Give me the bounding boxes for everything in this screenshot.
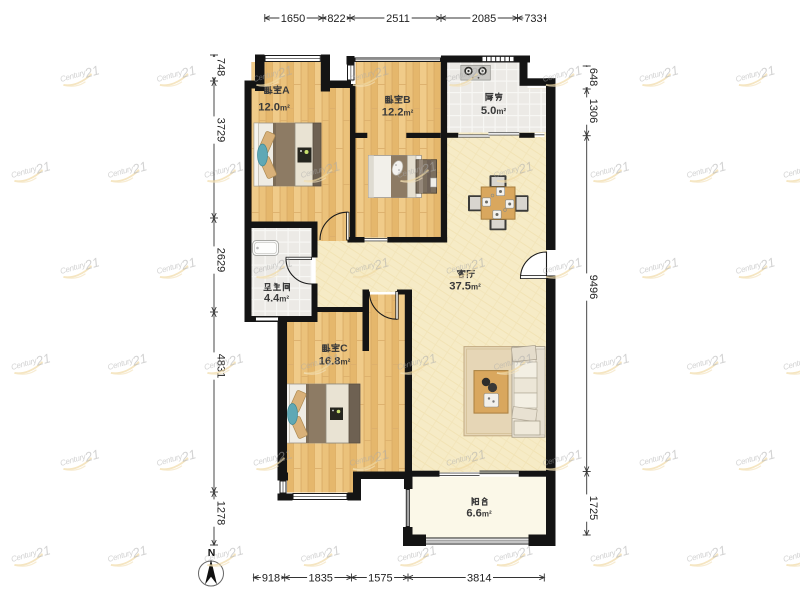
svg-text:12.2m²: 12.2m² xyxy=(382,107,414,119)
svg-text:2085: 2085 xyxy=(472,13,496,25)
svg-text:3814: 3814 xyxy=(467,573,491,585)
svg-text:6.6m²: 6.6m² xyxy=(466,508,492,520)
svg-text:748: 748 xyxy=(215,58,227,76)
svg-text:3729: 3729 xyxy=(215,118,227,142)
svg-text:4.4m²: 4.4m² xyxy=(264,293,289,305)
svg-text:1575: 1575 xyxy=(368,573,392,585)
svg-text:37.5m²: 37.5m² xyxy=(449,281,481,293)
svg-text:B: B xyxy=(403,95,411,106)
svg-text:A: A xyxy=(282,86,290,97)
svg-text:C: C xyxy=(340,344,348,355)
svg-text:2511: 2511 xyxy=(386,13,410,25)
svg-text:733: 733 xyxy=(524,13,542,25)
svg-text:1650: 1650 xyxy=(281,13,305,25)
svg-text:1306: 1306 xyxy=(587,99,599,123)
svg-text:5.0m²: 5.0m² xyxy=(481,105,507,117)
svg-text:822: 822 xyxy=(327,13,345,25)
svg-text:1725: 1725 xyxy=(587,496,599,520)
svg-text:12.0m²: 12.0m² xyxy=(258,102,290,114)
svg-text:648: 648 xyxy=(587,68,599,86)
svg-text:9496: 9496 xyxy=(587,275,599,299)
svg-text:1278: 1278 xyxy=(215,501,227,525)
svg-text:2629: 2629 xyxy=(215,248,227,272)
svg-text:918: 918 xyxy=(262,573,280,585)
svg-text:1835: 1835 xyxy=(308,573,332,585)
